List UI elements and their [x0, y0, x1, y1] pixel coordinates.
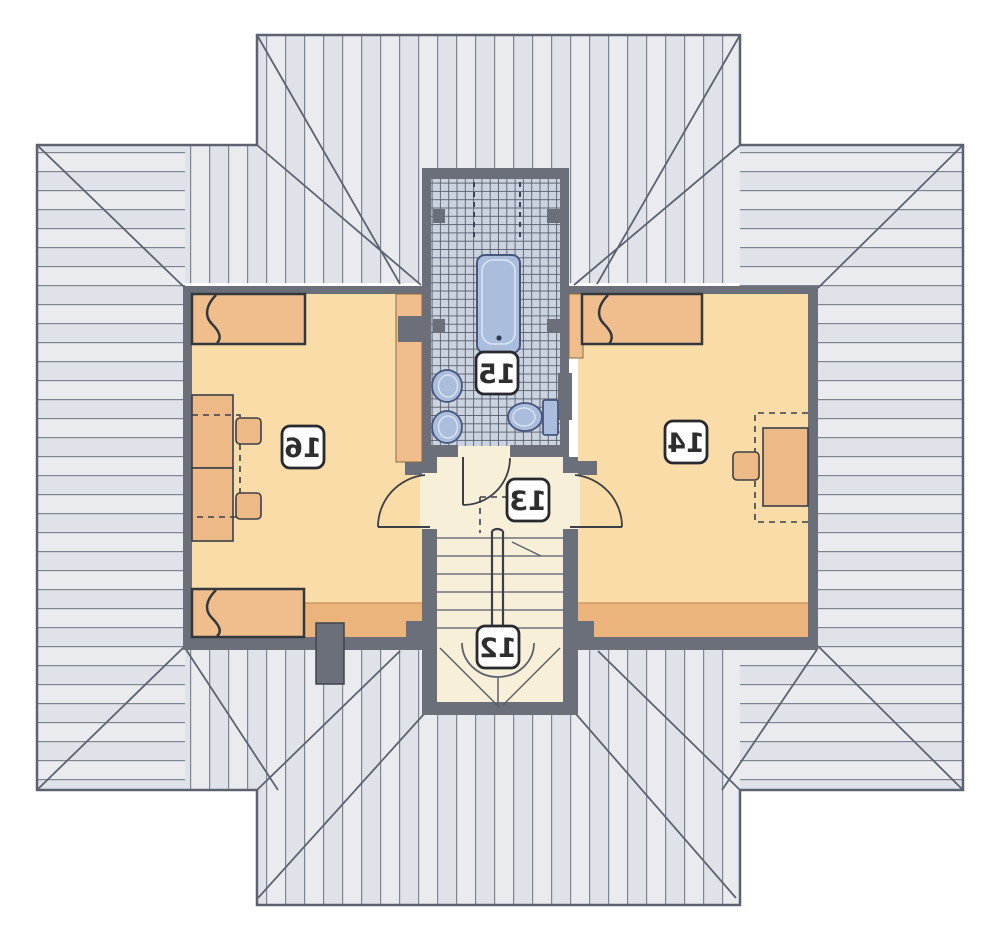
desk — [755, 413, 808, 522]
washbasin — [432, 411, 462, 443]
floor-plan-drawing: 12 13 14 15 16 — [0, 0, 1000, 940]
washbasin — [432, 370, 462, 402]
chair — [236, 418, 261, 444]
hall-wall-left-lower — [422, 529, 437, 648]
bed — [192, 589, 304, 637]
hall-wall-right-lower — [563, 529, 578, 648]
bed — [192, 294, 305, 344]
pier-left-bottom — [406, 621, 422, 637]
stairwell-wall-bottom — [422, 702, 578, 715]
south-wall-right — [578, 637, 818, 650]
stairwell-wall-right — [563, 648, 578, 710]
door-pier-left-top — [405, 461, 422, 475]
bathroom-post — [547, 209, 560, 223]
room-label-bedroom-left: 16 — [282, 426, 324, 468]
stairwell-floor — [437, 533, 563, 710]
bedroom-right-low-headroom-band — [578, 603, 808, 637]
bathroom-post — [547, 319, 560, 333]
room-number: 15 — [478, 359, 516, 390]
bathroom-post — [433, 209, 445, 223]
doorway-threshold-right — [561, 473, 580, 529]
chimney — [316, 623, 344, 684]
room-number: 16 — [284, 433, 322, 464]
west-wall — [183, 286, 192, 644]
toilet-wall-block — [558, 373, 572, 420]
room-label-hallway: 13 — [507, 479, 549, 521]
drain — [496, 335, 501, 340]
bathroom-wall-south-left — [422, 445, 458, 457]
bathroom-wall-west — [422, 168, 431, 457]
room-label-bathroom: 15 — [476, 352, 518, 394]
roof-plane-west — [37, 145, 185, 790]
doorway-threshold-left — [420, 473, 439, 529]
room-label-staircase: 12 — [477, 626, 519, 668]
room-number: 12 — [479, 633, 517, 664]
desk — [192, 395, 240, 541]
east-wall — [808, 286, 818, 644]
bathroom-wall-south-right — [510, 445, 569, 457]
room-label-bedroom-right: 14 — [665, 421, 707, 463]
wardrobe-pier-left-overlay — [398, 316, 422, 342]
chair — [236, 493, 261, 519]
room-number: 14 — [667, 428, 705, 459]
door-pier-right-top — [578, 461, 597, 475]
toilet-tank — [543, 400, 558, 435]
room-number: 13 — [509, 486, 547, 517]
bed — [582, 294, 702, 344]
pier-right-bottom — [578, 621, 594, 637]
hall-wall-right-upper — [563, 457, 578, 473]
floor-plan-page: 12 13 14 15 16 — [0, 0, 1000, 940]
bathroom-wall-north — [422, 168, 569, 179]
bathtub — [477, 255, 520, 353]
south-wall-left — [183, 637, 422, 650]
bathroom-post — [433, 319, 445, 333]
stairwell-wall-left — [422, 648, 437, 710]
chair — [733, 452, 759, 480]
hall-wall-left-upper — [422, 457, 437, 473]
